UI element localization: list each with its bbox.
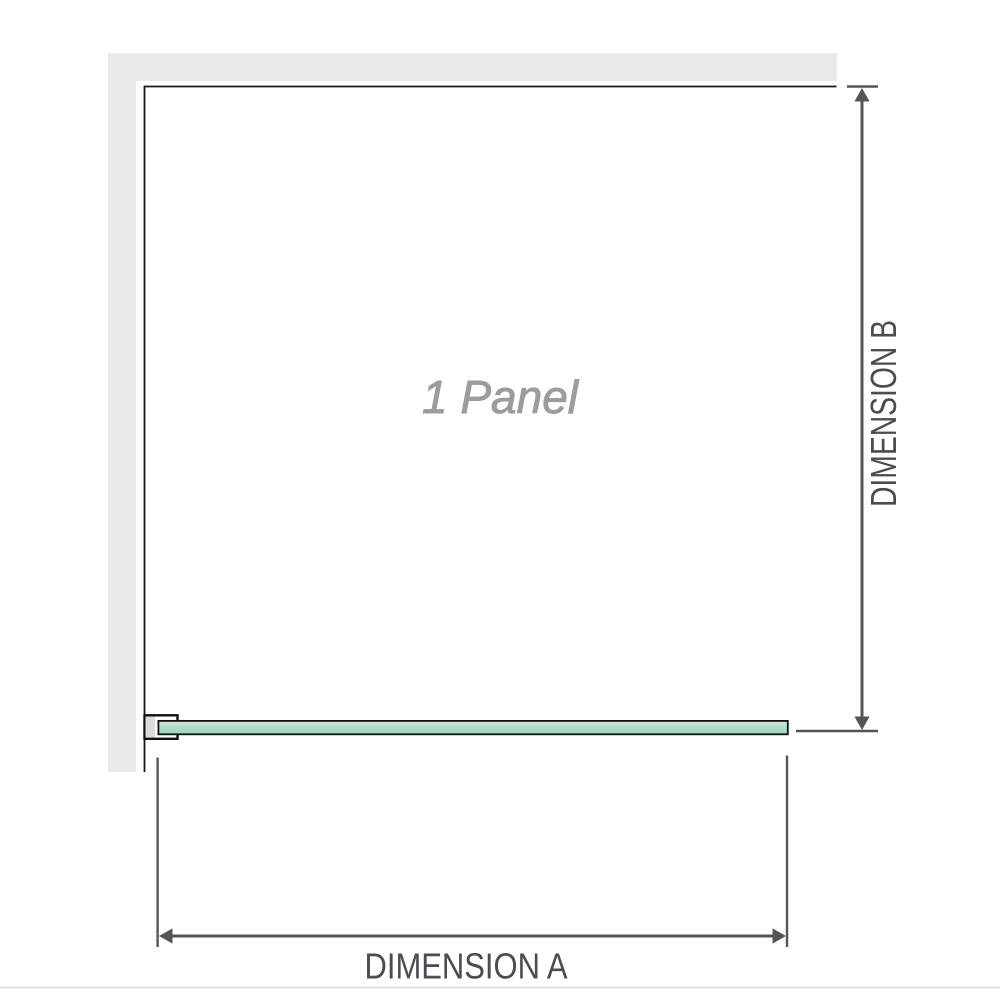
svg-text:1 Panel: 1 Panel — [422, 371, 580, 423]
svg-text:DIMENSION B: DIMENSION B — [863, 320, 904, 507]
svg-text:DIMENSION A: DIMENSION A — [365, 946, 568, 987]
